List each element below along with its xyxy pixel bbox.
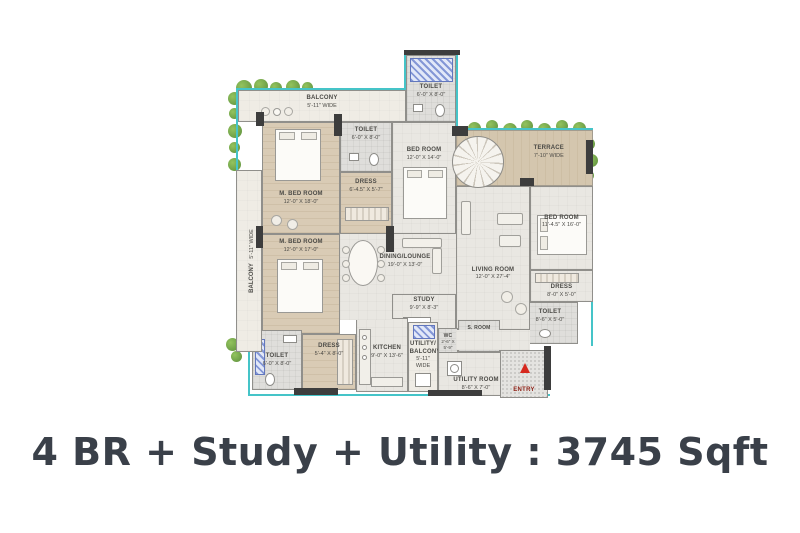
room-balcony-left: BALCONY 5'-11" WIDE (236, 170, 262, 352)
sofa-icon (461, 201, 471, 235)
entry-area: ENTRY (500, 350, 548, 398)
wall-segment (386, 226, 394, 252)
floorplan-image: BALCONY 5'-11" WIDE TOILET 6'-0" X 8'-0"… (0, 0, 800, 533)
dining-chair-icon (342, 274, 350, 282)
pillow-icon (281, 262, 297, 270)
entry-arrow-icon (520, 363, 530, 373)
room-dims: 12'-0" X 17'-0" (279, 247, 323, 254)
shrub-icon (229, 142, 240, 153)
wall-segment (256, 226, 263, 248)
toilet-fixture-icon (265, 373, 275, 386)
room-name: M. BED ROOM (279, 239, 323, 247)
lounge-sofa-icon (432, 248, 442, 274)
toilet-fixture-icon (369, 153, 379, 166)
room-toilet-right: TOILET 8'-6" X 5'-0" (522, 302, 578, 344)
room-dims: 12'-0" X 14'-0" (407, 155, 442, 162)
room-name: DRESS (315, 343, 344, 351)
boundary-line (456, 53, 458, 130)
room-bedroom-2: BED ROOM 12'-0" X 14'-0" (392, 122, 456, 234)
room-dims: 5'-11" WIDE (249, 229, 255, 259)
pillow-icon (428, 170, 443, 178)
room-dims: 5'-4" X 8'-0" (315, 351, 344, 358)
room-dims: 8'-0" X 5'-0" (547, 292, 576, 299)
dining-chair-icon (377, 274, 385, 282)
wall-segment (544, 346, 551, 390)
room-name: DRESS (547, 284, 576, 292)
lounge-sofa-icon (402, 238, 442, 248)
room-dims: 6'-0" X 8'-0" (417, 92, 446, 99)
sink-icon (349, 153, 359, 161)
wall-segment (520, 178, 534, 186)
washer-drum-icon (450, 364, 459, 373)
stove-burner-icon (362, 335, 367, 340)
room-dims: 6'-0" X 8'-0" (263, 361, 292, 368)
room-dims: 12'-0" X 27'-4" (472, 274, 515, 281)
armchair-icon (515, 303, 527, 315)
room-toilet-mid: TOILET 6'-0" X 8'-0" (340, 122, 392, 172)
pillow-icon (540, 236, 548, 250)
wall-segment (404, 50, 460, 55)
dining-chair-icon (342, 260, 350, 268)
room-kitchen: KITCHEN 9'-0" X 13'-6" (356, 318, 408, 392)
room-dims: 5'-11" WIDE (410, 356, 437, 370)
sink-icon (413, 104, 423, 112)
pillow-icon (407, 170, 422, 178)
room-name: BALCONY (306, 95, 337, 103)
stove-burner-icon (362, 345, 367, 350)
pillow-icon (301, 132, 317, 140)
sink-icon (283, 335, 297, 343)
room-dims: 6'-0" X 8'-0" (352, 135, 381, 142)
entry-label: ENTRY (513, 387, 535, 393)
hallway (456, 330, 530, 350)
dining-chair-icon (377, 246, 385, 254)
armchair-icon (287, 219, 298, 230)
room-name: M. BED ROOM (279, 191, 323, 199)
room-living-room: LIVING ROOM 12'-0" X 27'-4" (456, 186, 530, 330)
room-m-bedroom-1: M. BED ROOM 12'-0" X 18'-0" (262, 122, 340, 234)
room-name: TERRACE (534, 145, 564, 153)
wardrobe-icon (345, 207, 389, 221)
window-icon (413, 325, 435, 339)
room-dims: 9'-0" X 13'-6" (371, 353, 403, 360)
pillow-icon (279, 132, 295, 140)
wall-segment (294, 388, 338, 395)
boundary-line (248, 350, 250, 396)
room-dress-bl: DRESS 5'-4" X 8'-0" (302, 334, 356, 390)
room-dims: 8'-6" X 5'-0" (536, 317, 565, 324)
room-name: UTILITY ROOM (453, 377, 498, 385)
sofa-icon (497, 213, 523, 225)
balcony-chair-icon (284, 107, 293, 116)
wall-segment (428, 390, 482, 396)
room-name: TOILET (417, 84, 446, 92)
room-name: TOILET (263, 353, 292, 361)
room-name: TOILET (536, 309, 565, 317)
wardrobe-icon (535, 273, 579, 283)
room-dress-right: DRESS 8'-0" X 5'-0" (530, 270, 593, 302)
armchair-icon (501, 291, 513, 303)
room-name: TOILET (352, 127, 381, 135)
wall-segment (452, 126, 468, 136)
room-name: BALCONY (249, 263, 255, 293)
wall-segment (334, 114, 342, 136)
room-name: STUDY (410, 297, 439, 305)
room-dims: 19'-0" X 13'-0" (379, 262, 430, 269)
room-dims: 5'-11" WIDE (306, 103, 337, 110)
room-name: DRESS (349, 179, 382, 187)
wall-segment (256, 112, 264, 126)
room-dims: 2'-6" X 5'-9" (439, 339, 456, 350)
room-name: LIVING ROOM (472, 267, 515, 275)
room-m-bedroom-2: M. BED ROOM 12'-0" X 17'-0" (262, 234, 340, 334)
room-dims: 7'-10" WIDE (534, 153, 564, 160)
hallway (340, 294, 392, 320)
room-toilet-top: TOILET 6'-0" X 8'-0" (406, 55, 456, 122)
room-name: BED ROOM (407, 147, 442, 155)
shrub-icon (228, 124, 242, 138)
shrub-icon (231, 351, 242, 362)
toilet-fixture-icon (539, 329, 551, 338)
stove-burner-icon (362, 355, 367, 360)
pillow-icon (303, 262, 319, 270)
room-dims: 11'-4.5" X 16'-0" (542, 222, 581, 229)
room-bedroom-3: BED ROOM 11'-4.5" X 16'-0" (530, 186, 593, 270)
dining-chair-icon (342, 246, 350, 254)
balcony-table-icon (273, 108, 281, 116)
room-name: DINING/LOUNGE (379, 254, 430, 262)
dining-table-icon (348, 240, 378, 286)
plan-title: 4 BR + Study + Utility : 3745 Sqft (0, 430, 800, 474)
room-dims: 12'-0" X 18'-0" (279, 199, 323, 206)
window-icon (410, 58, 453, 82)
armchair-icon (271, 215, 282, 226)
room-dress-mid: DRESS 6'-4.5" X 5'-7" (340, 172, 392, 234)
washer-icon (415, 373, 431, 387)
room-utility-balcony: UTILITY/ BALCONY 5'-11" WIDE (408, 322, 438, 392)
toilet-fixture-icon (435, 104, 445, 117)
room-name: UTILITY/ BALCONY (410, 341, 437, 356)
room-name: BED ROOM (542, 215, 581, 223)
sofa-icon (499, 235, 521, 247)
room-dims: 9'-9" X 8'-3" (410, 305, 439, 312)
room-name: KITCHEN (371, 345, 403, 353)
room-dims: 6'-4.5" X 5'-7" (349, 187, 382, 194)
kitchen-counter-icon (371, 377, 403, 387)
room-dining-lounge: DINING/LOUNGE 19'-0" X 13'-0" (340, 234, 456, 294)
spiral-stair-icon (452, 136, 504, 188)
wall-segment (586, 140, 593, 174)
